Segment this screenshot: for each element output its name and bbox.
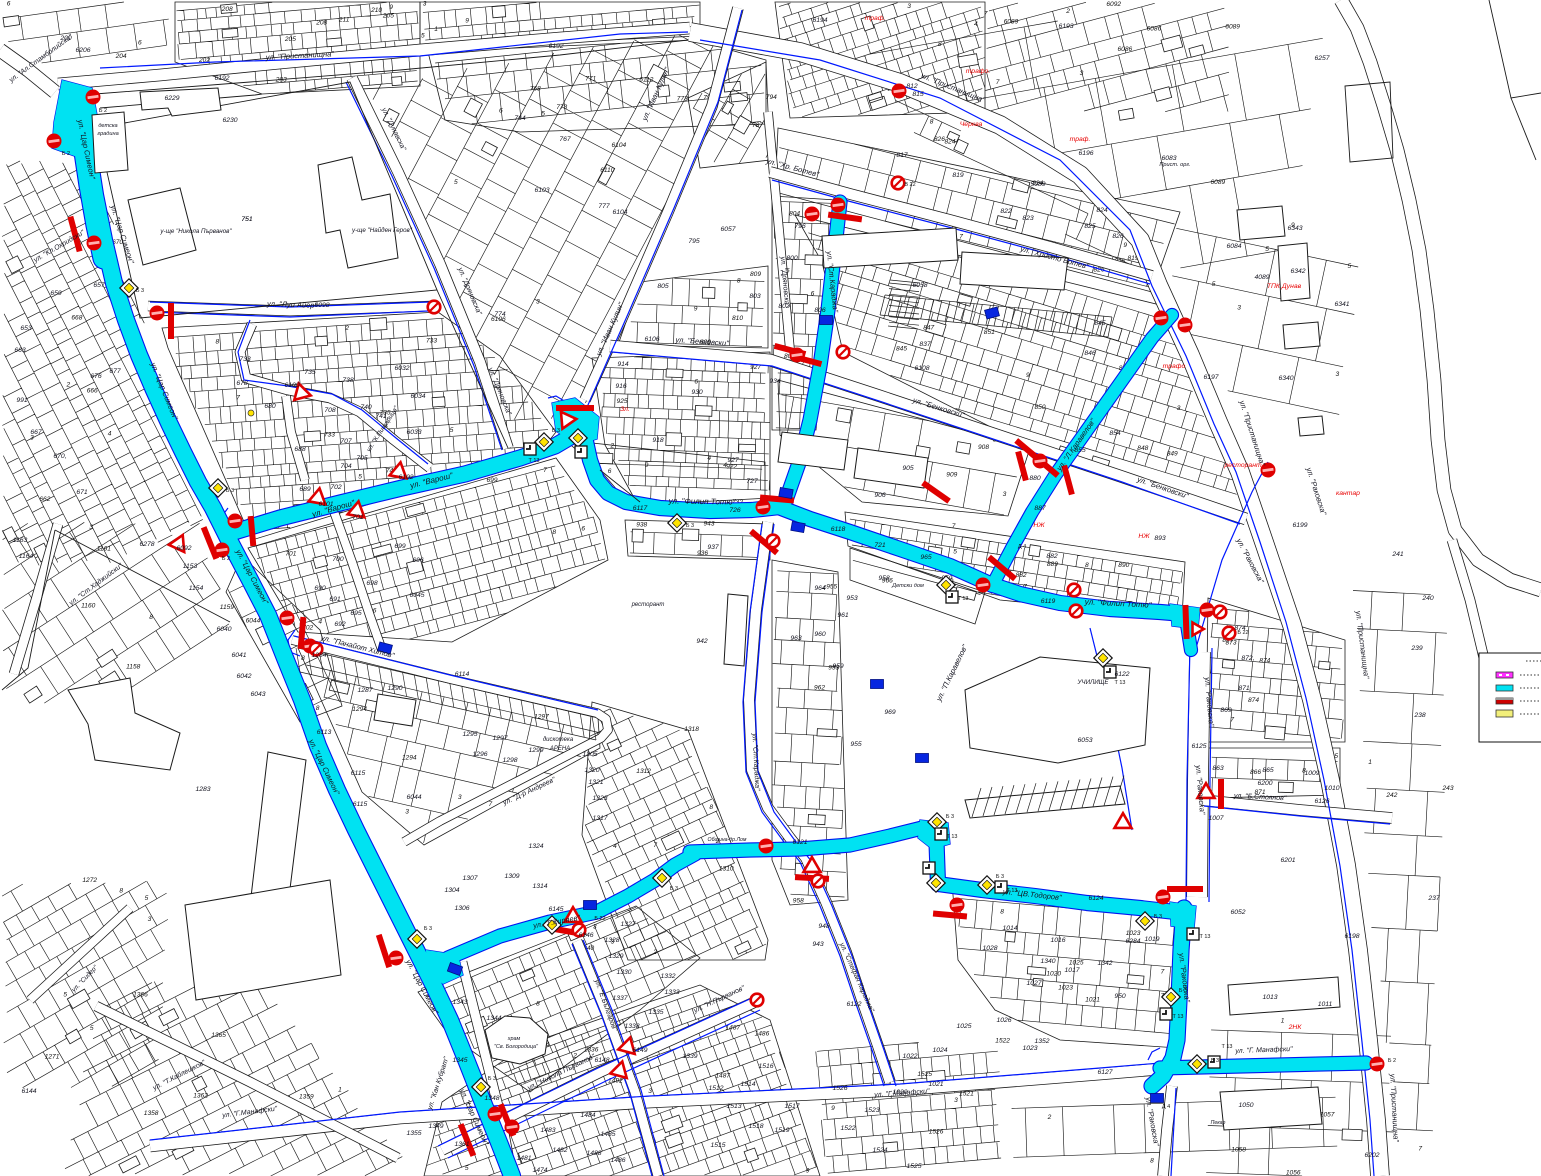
svg-text:688: 688 xyxy=(294,446,306,453)
svg-text:Б 3: Б 3 xyxy=(670,886,678,892)
svg-text:Прист. орг.: Прист. орг. xyxy=(1159,162,1190,168)
svg-text:1016: 1016 xyxy=(1050,937,1065,944)
svg-text:Т 13: Т 13 xyxy=(1221,1044,1232,1050)
svg-text:721: 721 xyxy=(874,542,886,549)
svg-text:1057: 1057 xyxy=(1320,1112,1335,1119)
svg-text:1358: 1358 xyxy=(144,1110,159,1117)
svg-text:5: 5 xyxy=(1265,246,1269,253)
svg-text:6202: 6202 xyxy=(1364,1152,1379,1159)
svg-text:1333: 1333 xyxy=(664,989,679,996)
svg-text:691: 691 xyxy=(329,596,341,603)
svg-text:653: 653 xyxy=(20,325,32,332)
svg-text:1154: 1154 xyxy=(189,585,204,592)
svg-text:1020: 1020 xyxy=(892,1089,907,1096)
svg-text:8: 8 xyxy=(316,705,320,712)
svg-text:6193: 6193 xyxy=(1058,23,1073,30)
svg-text:5: 5 xyxy=(63,992,67,999)
svg-text:1: 1 xyxy=(1281,1017,1285,1024)
svg-text:6201: 6201 xyxy=(1280,857,1295,864)
svg-text:872,: 872, xyxy=(1241,655,1254,662)
svg-text:927: 927 xyxy=(727,457,739,464)
svg-text:5: 5 xyxy=(421,33,425,40)
svg-text:НЖ: НЖ xyxy=(1033,522,1045,529)
svg-text:906: 906 xyxy=(874,492,886,499)
svg-text:Т 13: Т 13 xyxy=(1199,934,1210,940)
svg-text:796: 796 xyxy=(794,223,806,230)
svg-text:2: 2 xyxy=(1047,1114,1052,1121)
svg-text:1318: 1318 xyxy=(684,726,699,733)
svg-text:4: 4 xyxy=(613,843,617,850)
svg-text:1304: 1304 xyxy=(444,887,459,894)
svg-text:819: 819 xyxy=(952,172,964,179)
svg-text:6257: 6257 xyxy=(1314,55,1329,62)
svg-text:Д 4: Д 4 xyxy=(1162,1104,1170,1110)
svg-text:6058: 6058 xyxy=(912,282,927,289)
svg-text:1305: 1305 xyxy=(582,751,597,758)
svg-text:8: 8 xyxy=(1000,909,1004,916)
svg-text:5: 5 xyxy=(145,895,149,902)
svg-text:6: 6 xyxy=(581,525,585,532)
svg-text:205: 205 xyxy=(382,12,394,19)
svg-text:6343: 6343 xyxy=(1287,225,1302,232)
svg-text:6146: 6146 xyxy=(578,932,593,939)
svg-text:887: 887 xyxy=(1034,505,1046,512)
svg-text:666: 666 xyxy=(87,388,98,395)
svg-text:Т 13: Т 13 xyxy=(1172,1014,1183,1020)
svg-text:777: 777 xyxy=(598,203,610,210)
svg-text:1298: 1298 xyxy=(502,757,517,764)
svg-text:6342: 6342 xyxy=(1290,268,1305,275)
svg-text:6340: 6340 xyxy=(1278,375,1293,382)
svg-text:741,: 741, xyxy=(375,413,388,420)
svg-text:1486: 1486 xyxy=(610,1157,625,1164)
svg-text:6084: 6084 xyxy=(1226,243,1241,250)
svg-text:958: 958 xyxy=(878,575,890,582)
svg-text:938: 938 xyxy=(636,522,647,529)
svg-text:1158: 1158 xyxy=(126,664,141,671)
svg-text:Т 13: Т 13 xyxy=(1006,888,1017,894)
svg-text:680: 680 xyxy=(264,403,276,410)
svg-text:6126: 6126 xyxy=(1314,798,1329,805)
svg-text:922: 922 xyxy=(726,463,737,470)
svg-text:5: 5 xyxy=(454,179,458,186)
svg-text:6198: 6198 xyxy=(1344,933,1359,940)
svg-text:1323: 1323 xyxy=(592,795,607,802)
svg-text:3: 3 xyxy=(536,298,540,305)
svg-text:6086: 6086 xyxy=(1147,26,1162,33)
svg-text:6053: 6053 xyxy=(1077,737,1092,744)
svg-text:6200: 6200 xyxy=(1257,780,1272,787)
svg-text:6040: 6040 xyxy=(216,626,231,633)
svg-text:866: 866 xyxy=(1250,769,1261,776)
svg-text:9: 9 xyxy=(1026,372,1030,379)
svg-text:9: 9 xyxy=(389,4,393,11)
svg-text:800: 800 xyxy=(786,255,798,262)
svg-text:1050: 1050 xyxy=(1238,1102,1253,1109)
svg-text:204: 204 xyxy=(115,53,127,60)
svg-text:242: 242 xyxy=(1385,792,1397,799)
svg-text:3: 3 xyxy=(954,1097,958,1104)
svg-text:9: 9 xyxy=(465,17,469,24)
svg-text:824: 824 xyxy=(1096,207,1108,214)
svg-text:траф.: траф. xyxy=(865,15,886,22)
svg-text:733: 733 xyxy=(324,432,335,439)
svg-text:678: 678 xyxy=(236,380,248,387)
svg-text:961: 961 xyxy=(837,612,849,619)
svg-text:3: 3 xyxy=(907,3,911,10)
svg-text:4: 4 xyxy=(318,619,322,626)
svg-text:6194: 6194 xyxy=(812,17,827,24)
svg-text:6041: 6041 xyxy=(231,652,246,659)
svg-text:1007: 1007 xyxy=(1208,815,1223,822)
svg-text:2: 2 xyxy=(572,1052,577,1059)
svg-text:6: 6 xyxy=(7,0,11,7)
svg-text:6206: 6206 xyxy=(75,47,90,54)
svg-text:965: 965 xyxy=(920,554,932,561)
svg-text:6092: 6092 xyxy=(1106,1,1121,8)
svg-text:943: 943 xyxy=(704,520,715,527)
svg-text:Пекар: Пекар xyxy=(1211,1120,1226,1126)
svg-text:918: 918 xyxy=(652,437,664,444)
svg-text:1020: 1020 xyxy=(1046,970,1061,977)
svg-text:1: 1 xyxy=(338,1087,342,1094)
svg-text:882: 882 xyxy=(1046,553,1058,560)
svg-text:3: 3 xyxy=(593,923,597,930)
svg-text:1340: 1340 xyxy=(1040,958,1055,965)
svg-text:Б 3: Б 3 xyxy=(226,488,234,494)
svg-text:850: 850 xyxy=(1035,404,1046,411)
svg-text:1014: 1014 xyxy=(1002,925,1017,932)
svg-text:6145: 6145 xyxy=(548,906,563,913)
svg-text:3: 3 xyxy=(148,916,152,923)
svg-text:6108: 6108 xyxy=(914,365,929,372)
svg-text:7: 7 xyxy=(1161,969,1165,976)
svg-text:930: 930 xyxy=(691,389,703,396)
svg-text:1524: 1524 xyxy=(872,1147,887,1154)
svg-text:6114: 6114 xyxy=(455,671,470,678)
svg-text:Б 3: Б 3 xyxy=(1179,988,1187,994)
svg-text:812: 812 xyxy=(906,83,918,90)
svg-text:690: 690 xyxy=(314,585,326,592)
svg-text:8: 8 xyxy=(301,655,305,662)
svg-text:238: 238 xyxy=(1413,712,1426,719)
svg-text:1317: 1317 xyxy=(592,815,607,822)
svg-text:кантар: кантар xyxy=(1336,490,1360,497)
svg-text:8: 8 xyxy=(216,338,220,345)
svg-text:6033: 6033 xyxy=(406,429,421,436)
svg-text:1: 1 xyxy=(1368,759,1372,766)
svg-text:826: 826 xyxy=(934,136,945,143)
svg-text:802: 802 xyxy=(778,303,790,310)
svg-text:7: 7 xyxy=(959,233,963,240)
svg-text:1010: 1010 xyxy=(1324,785,1339,792)
svg-text:1023: 1023 xyxy=(1022,1045,1037,1052)
svg-text:"Св. Богородица": "Св. Богородица" xyxy=(494,1044,539,1050)
svg-text:5: 5 xyxy=(358,474,362,481)
svg-text:671: 671 xyxy=(76,489,88,496)
svg-text:893: 893 xyxy=(1154,535,1166,542)
svg-text:Б 3: Б 3 xyxy=(488,1076,496,1082)
svg-text:4089: 4089 xyxy=(1254,274,1269,281)
svg-text:969: 969 xyxy=(884,709,896,716)
svg-text:740: 740 xyxy=(360,404,372,411)
svg-text:6148: 6148 xyxy=(594,1057,609,1064)
svg-text:6044: 6044 xyxy=(406,794,421,801)
svg-text:5: 5 xyxy=(1348,263,1352,270)
svg-text:1516: 1516 xyxy=(758,1063,773,1070)
svg-text:1309: 1309 xyxy=(504,873,519,880)
svg-text:1271: 1271 xyxy=(45,1054,60,1061)
svg-text:959: 959 xyxy=(832,663,844,670)
svg-text:1023: 1023 xyxy=(1058,985,1073,992)
svg-text:Община-др.Лом: Община-др.Лом xyxy=(708,837,747,843)
svg-text:701: 701 xyxy=(352,514,364,521)
svg-text:6057: 6057 xyxy=(720,226,735,233)
svg-text:дискотека: дискотека xyxy=(543,737,574,743)
svg-text:738: 738 xyxy=(342,377,354,384)
svg-text:3: 3 xyxy=(423,1,427,8)
svg-text:676: 676 xyxy=(90,373,102,380)
svg-text:7: 7 xyxy=(543,467,547,474)
svg-text:733: 733 xyxy=(426,338,437,345)
svg-text:880: 880 xyxy=(1029,475,1041,482)
svg-text:3: 3 xyxy=(1003,491,1007,498)
svg-text:1337: 1337 xyxy=(612,995,627,1002)
svg-text:1312: 1312 xyxy=(636,768,651,775)
svg-text:1028: 1028 xyxy=(982,945,997,952)
svg-text:8: 8 xyxy=(536,1001,540,1008)
svg-text:6: 6 xyxy=(811,291,815,298)
svg-text:8: 8 xyxy=(149,614,153,621)
svg-text:1515: 1515 xyxy=(710,1142,725,1149)
svg-text:1163: 1163 xyxy=(13,537,28,544)
svg-text:916: 916 xyxy=(615,383,627,390)
svg-text:1481: 1481 xyxy=(516,1155,531,1162)
svg-text:1513: 1513 xyxy=(726,1103,741,1110)
svg-text:у-ще "Никола Първанов": у-ще "Никола Първанов" xyxy=(159,228,232,235)
svg-text:696: 696 xyxy=(412,557,424,564)
svg-text:960: 960 xyxy=(814,631,826,638)
svg-text:1025: 1025 xyxy=(956,1023,971,1030)
svg-text:Б 2: Б 2 xyxy=(222,556,230,562)
svg-text:8: 8 xyxy=(1150,1158,1154,1165)
svg-text:963: 963 xyxy=(790,635,802,642)
svg-text:874: 874 xyxy=(1259,657,1270,664)
svg-text:7: 7 xyxy=(996,79,1000,86)
svg-text:908: 908 xyxy=(978,444,989,451)
svg-text:6104: 6104 xyxy=(612,209,627,216)
svg-text:794: 794 xyxy=(766,94,777,101)
svg-text:964: 964 xyxy=(814,585,826,592)
svg-text:6127: 6127 xyxy=(1097,1069,1112,1076)
svg-text:848: 848 xyxy=(1137,445,1148,452)
svg-text:6: 6 xyxy=(608,468,612,475)
svg-text:6118: 6118 xyxy=(831,526,846,533)
svg-text:657: 657 xyxy=(93,282,105,289)
svg-text:9: 9 xyxy=(694,306,698,313)
svg-text:6045: 6045 xyxy=(409,592,424,599)
svg-text:6117: 6117 xyxy=(633,505,648,512)
svg-text:5: 5 xyxy=(450,427,454,434)
svg-text:5: 5 xyxy=(541,110,545,117)
svg-text:Б 3: Б 3 xyxy=(424,926,432,932)
svg-text:9: 9 xyxy=(806,1168,810,1175)
svg-text:1296: 1296 xyxy=(472,751,487,758)
svg-text:6341: 6341 xyxy=(1334,301,1349,308)
svg-text:Б 3: Б 3 xyxy=(136,288,144,294)
svg-text:702: 702 xyxy=(330,484,342,491)
svg-text:890: 890 xyxy=(1118,562,1129,569)
svg-text:ул. "Филип Тотю": ул. "Филип Тотю" xyxy=(668,496,737,506)
svg-text:701: 701 xyxy=(285,551,296,558)
svg-text:751: 751 xyxy=(241,216,253,223)
svg-text:3: 3 xyxy=(1336,371,1340,378)
svg-text:6121: 6121 xyxy=(792,839,807,846)
svg-text:6230: 6230 xyxy=(222,117,237,124)
svg-text:6122: 6122 xyxy=(1114,671,1129,678)
svg-text:1342: 1342 xyxy=(1097,960,1112,967)
svg-text:1160: 1160 xyxy=(81,602,96,609)
svg-text:241: 241 xyxy=(1391,551,1404,558)
svg-text:707: 707 xyxy=(340,438,352,445)
svg-text:ул. "Луи Айер": ул. "Луи Айер" xyxy=(266,299,318,310)
svg-text:874: 874 xyxy=(1248,697,1259,704)
svg-text:210: 210 xyxy=(370,7,382,14)
svg-text:1314: 1314 xyxy=(532,883,547,890)
svg-text:1011: 1011 xyxy=(1318,1001,1333,1008)
svg-text:704: 704 xyxy=(340,463,352,470)
svg-text:823: 823 xyxy=(1022,215,1034,222)
svg-text:6115: 6115 xyxy=(353,801,368,808)
svg-text:7: 7 xyxy=(952,523,956,530)
svg-text:240: 240 xyxy=(1421,595,1434,602)
svg-text:2НК: 2НК xyxy=(1288,1024,1303,1031)
svg-text:1306: 1306 xyxy=(454,905,469,912)
svg-text:3: 3 xyxy=(648,1088,652,1095)
svg-text:3: 3 xyxy=(1177,405,1181,412)
svg-text:1023: 1023 xyxy=(1126,930,1141,937)
svg-text:1283: 1283 xyxy=(195,786,210,793)
svg-text:1517: 1517 xyxy=(784,1103,799,1110)
svg-text:Б 3: Б 3 xyxy=(946,814,954,820)
svg-text:909: 909 xyxy=(946,472,957,479)
svg-text:1009: 1009 xyxy=(1304,770,1319,777)
svg-text:1349: 1349 xyxy=(428,1123,443,1130)
svg-text:6089: 6089 xyxy=(1211,179,1226,186)
svg-text:1294: 1294 xyxy=(352,706,367,713)
svg-text:699: 699 xyxy=(487,477,498,484)
svg-text:6089: 6089 xyxy=(1004,19,1019,26)
svg-text:889: 889 xyxy=(1047,561,1058,568)
svg-text:205: 205 xyxy=(284,36,296,43)
svg-text:6102: 6102 xyxy=(398,474,413,481)
svg-text:1022: 1022 xyxy=(902,1053,917,1060)
svg-text:7: 7 xyxy=(1418,1145,1422,1152)
svg-text:6098: 6098 xyxy=(314,302,329,309)
svg-text:8: 8 xyxy=(709,804,713,811)
svg-text:936: 936 xyxy=(697,550,708,557)
svg-text:1272: 1272 xyxy=(82,877,97,884)
svg-text:815: 815 xyxy=(912,91,924,98)
svg-text:трафо.: трафо. xyxy=(966,68,991,75)
svg-text:942: 942 xyxy=(696,638,708,645)
svg-text:1522: 1522 xyxy=(840,1125,855,1132)
svg-text:1320: 1320 xyxy=(584,767,599,774)
svg-text:1514: 1514 xyxy=(740,1081,755,1088)
svg-text:3: 3 xyxy=(89,524,93,531)
svg-text:1365: 1365 xyxy=(211,1032,226,1039)
svg-text:1330: 1330 xyxy=(616,969,631,976)
svg-text:5089: 5089 xyxy=(1030,181,1045,188)
svg-text:ресторант: ресторант xyxy=(631,602,665,608)
svg-text:7: 7 xyxy=(489,801,493,808)
svg-text:1338: 1338 xyxy=(624,1023,639,1030)
svg-text:Черква: Черква xyxy=(960,121,983,128)
svg-text:849: 849 xyxy=(1167,450,1178,457)
svg-text:Т 13: Т 13 xyxy=(946,834,957,840)
svg-text:5: 5 xyxy=(953,549,957,556)
svg-text:3: 3 xyxy=(458,794,462,801)
svg-text:5: 5 xyxy=(1212,281,1216,288)
svg-text:955: 955 xyxy=(850,741,862,748)
svg-text:865: 865 xyxy=(1262,767,1274,774)
svg-text:1483: 1483 xyxy=(540,1127,555,1134)
svg-text:8: 8 xyxy=(737,278,741,285)
svg-text:1343: 1343 xyxy=(452,999,467,1006)
svg-text:6089: 6089 xyxy=(1225,23,1240,30)
svg-text:Б 2: Б 2 xyxy=(62,151,70,157)
svg-text:1355: 1355 xyxy=(406,1130,421,1137)
svg-text:1482: 1482 xyxy=(552,1147,567,1154)
svg-text:6197: 6197 xyxy=(1203,374,1218,381)
svg-text:1474: 1474 xyxy=(532,1167,547,1174)
svg-text:1526: 1526 xyxy=(832,1085,847,1092)
svg-text:1329: 1329 xyxy=(608,953,623,960)
svg-text:1523: 1523 xyxy=(864,1107,879,1114)
svg-text:1284: 1284 xyxy=(311,652,326,659)
svg-text:храм: храм xyxy=(507,1036,521,1042)
svg-text:2: 2 xyxy=(652,949,657,956)
svg-text:1348: 1348 xyxy=(484,1095,499,1102)
svg-text:822: 822 xyxy=(1000,208,1012,215)
svg-text:667: 667 xyxy=(30,429,42,436)
svg-text:806: 806 xyxy=(814,307,826,314)
svg-text:962: 962 xyxy=(814,685,825,692)
svg-text:Детски дом: Детски дом xyxy=(891,583,924,589)
svg-text:934: 934 xyxy=(769,378,781,385)
svg-text:1290: 1290 xyxy=(387,685,402,692)
svg-text:В 22: В 22 xyxy=(904,182,915,188)
svg-text:863: 863 xyxy=(1212,765,1224,772)
svg-text:6144: 6144 xyxy=(21,1088,36,1095)
svg-text:243: 243 xyxy=(1442,785,1454,792)
svg-text:846: 846 xyxy=(1084,350,1096,357)
svg-text:Д 4: Д 4 xyxy=(1018,544,1026,550)
svg-text:824: 824 xyxy=(945,139,956,146)
svg-text:7: 7 xyxy=(236,395,240,402)
svg-text:208: 208 xyxy=(221,6,233,13)
svg-text:837: 837 xyxy=(919,341,931,348)
svg-text:3: 3 xyxy=(405,808,409,815)
svg-text:764: 764 xyxy=(514,115,526,122)
svg-text:1299: 1299 xyxy=(528,747,543,754)
svg-text:7: 7 xyxy=(1230,716,1234,723)
svg-text:768: 768 xyxy=(530,85,541,92)
svg-text:УЧИЛИЩЕ: УЧИЛИЩЕ xyxy=(1076,679,1109,686)
svg-text:Б 22: Б 22 xyxy=(1237,630,1248,636)
svg-text:ТПК Дунав: ТПК Дунав xyxy=(1267,283,1302,290)
svg-text:773: 773 xyxy=(556,104,567,111)
